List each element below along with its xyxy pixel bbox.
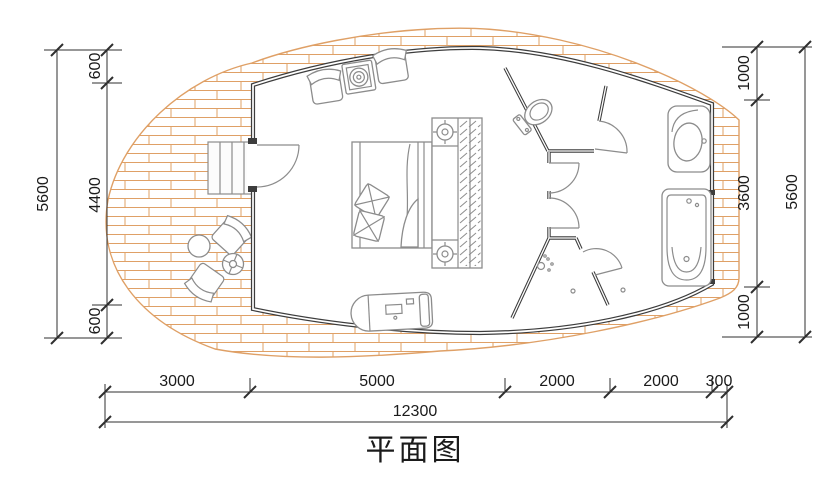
double-bed [352,142,432,248]
dim-label: 600 [87,53,104,80]
dim-label: 1000 [736,55,753,91]
dimension-bottom: 3000 5000 2000 2000 300 12300 [99,373,733,428]
dimension-right: 1000 3600 1000 5600 [722,41,812,343]
armchair [372,46,411,84]
dim-label: 1000 [736,294,753,330]
washbasin [668,106,710,172]
dim-label: 2000 [643,373,679,390]
dim-label: 3000 [159,373,195,390]
dim-label: 12300 [393,403,438,420]
floor-plan-page: 5600 600 4400 600 1000 3600 1000 5600 30… [0,0,837,496]
armchair [306,67,345,105]
dim-label: 4400 [87,177,104,213]
chaise-bench [350,292,433,332]
bathtub [662,189,711,286]
floor-plan-canvas: 5600 600 4400 600 1000 3600 1000 5600 30… [0,0,837,496]
dim-label: 5600 [784,174,801,210]
pillow [353,210,385,242]
outdoor-round-table [188,235,210,257]
dim-label: 2000 [539,373,575,390]
drawing-title: 平面图 [366,434,465,467]
wardrobe-unit [432,118,482,268]
dim-label: 5000 [359,373,395,390]
dim-label: 5600 [35,176,52,212]
dim-label: 300 [706,373,733,390]
dim-label: 600 [87,308,104,335]
side-table [342,60,376,94]
dim-label: 3600 [736,175,753,211]
